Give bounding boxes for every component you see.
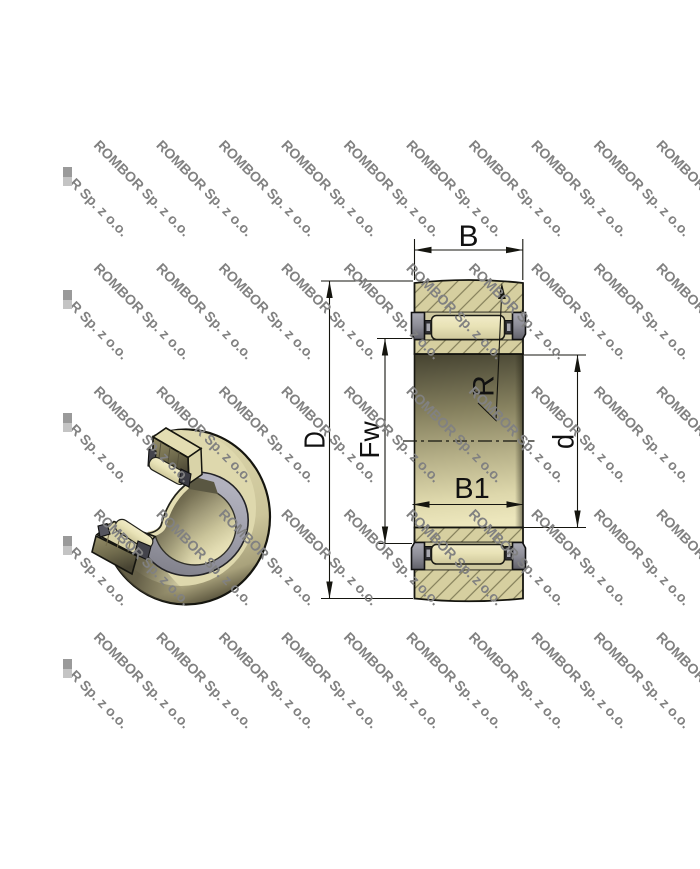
svg-text:R Sp. z o.o.: R Sp. z o.o.	[67, 175, 132, 240]
svg-text:R Sp. z o.o.: R Sp. z o.o.	[67, 667, 132, 732]
svg-text:B1: B1	[454, 473, 489, 505]
svg-text:R Sp. z o.o.: R Sp. z o.o.	[67, 298, 132, 363]
svg-text:B: B	[458, 220, 478, 253]
